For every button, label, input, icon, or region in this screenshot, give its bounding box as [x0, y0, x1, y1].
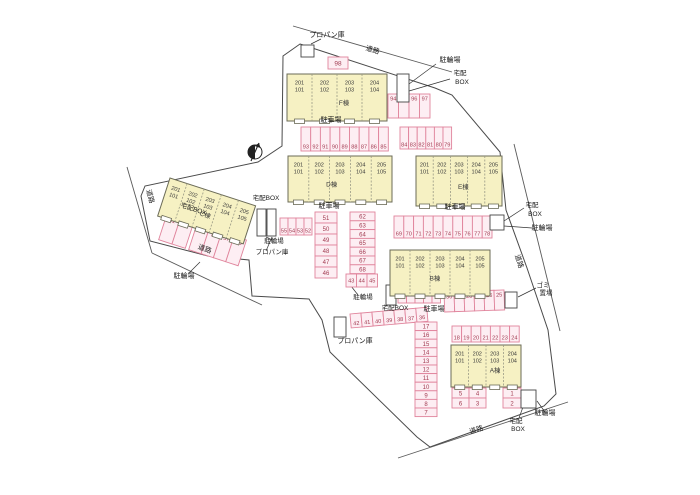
- label-delivery-ne-2: BOX: [455, 79, 469, 86]
- parking-number: 17: [423, 325, 430, 331]
- label-delivery-e-2: BOX: [528, 211, 542, 218]
- unit-number: 203: [335, 163, 344, 169]
- parking-group-55-52: 55545352: [280, 218, 312, 235]
- unit-number: 104: [472, 170, 481, 176]
- parking-group-98: 98: [328, 57, 348, 69]
- delivery-bike-box-se: [521, 390, 536, 408]
- label-parking-b: 駐車場: [424, 304, 445, 313]
- parking-number: 94: [390, 97, 396, 103]
- parking-number: 12: [423, 368, 430, 374]
- unit-number: 204: [472, 163, 481, 169]
- propane-box-bottom: [334, 317, 346, 337]
- parking-number: 92: [312, 145, 318, 151]
- unit-number: 101: [395, 264, 404, 270]
- building-E-entrance: [471, 204, 481, 209]
- parking-group-1-2: 12: [503, 388, 521, 408]
- parking-number: 98: [334, 60, 342, 67]
- unit-number: 102: [315, 170, 324, 176]
- parking-number: 65: [359, 241, 366, 247]
- parking-group-69-78: 69707172737475767778: [394, 216, 492, 238]
- unit-number: 202: [315, 163, 324, 169]
- parking-number: 97: [422, 97, 428, 103]
- unit-number: 201: [294, 163, 303, 169]
- parking-group-18-24: 18192021222324: [452, 326, 519, 342]
- label-garbage-1: ゴミ: [537, 280, 550, 289]
- unit-number: 201: [395, 257, 404, 263]
- unit-number: 105: [489, 170, 498, 176]
- site-plan-page: 9894959697939291908988878685848382818079…: [0, 0, 700, 495]
- parking-number: 89: [342, 145, 348, 151]
- parking-number: 74: [445, 232, 451, 238]
- unit-number: 204: [356, 163, 365, 169]
- label-bike-mid: 駐輪場: [353, 292, 373, 301]
- building-A-entrance: [472, 385, 482, 390]
- parking-number: 19: [463, 336, 469, 342]
- label-propane-top: プロパン庫: [309, 30, 344, 39]
- parking-number: 49: [323, 238, 330, 244]
- site-plan: 9894959697939291908988878685848382818079…: [0, 0, 700, 495]
- parking-number: 64: [359, 232, 366, 238]
- parking-number: 22: [492, 336, 498, 342]
- parking-group-93-85: 939291908988878685: [301, 127, 388, 151]
- parking-number: 93: [303, 145, 309, 151]
- unit-number: 205: [489, 163, 498, 169]
- building-E: 201101202102203103204104205105E棟: [416, 156, 502, 209]
- label-bike-ne: 駐輪場: [440, 55, 461, 64]
- unit-number: 104: [455, 264, 464, 270]
- parking-number: 85: [380, 145, 386, 151]
- parking-number: 40: [375, 319, 382, 326]
- label-delivery-b: 宅配BOX: [382, 303, 409, 312]
- building-D: 201101202102203103204104205105D棟: [288, 156, 392, 205]
- parking-number: 16: [423, 333, 430, 339]
- parking-number: 38: [397, 317, 404, 324]
- parking-group-84-79: 848382818079: [400, 127, 452, 149]
- parking-number: 18: [454, 336, 460, 342]
- parking-number: 13: [423, 359, 430, 365]
- parking-group-17-7: 1716151413121110987: [415, 322, 437, 417]
- propane-box-top: [301, 45, 314, 57]
- unit-number: 102: [437, 170, 446, 176]
- unit-number: 103: [345, 88, 354, 94]
- parking-number: 82: [418, 143, 424, 149]
- parking-number: 81: [427, 143, 433, 149]
- unit-number: 105: [377, 170, 386, 176]
- unit-number: 203: [454, 163, 463, 169]
- label-delivery-se-1: 宅配: [510, 416, 524, 425]
- parking-group-43-45: 434445: [346, 274, 378, 287]
- building-B-label: B棟: [430, 273, 441, 282]
- building-B-entrance: [415, 294, 425, 299]
- parking-number: 91: [322, 145, 328, 151]
- unit-number: 102: [320, 88, 329, 94]
- bike-box-center: [257, 209, 266, 236]
- building-E-entrance: [488, 204, 498, 209]
- parking-number: 55: [281, 229, 287, 235]
- parking-number: 79: [444, 143, 450, 149]
- unit-number: 101: [420, 170, 429, 176]
- parking-number: 36: [419, 315, 426, 322]
- parking-number: 73: [435, 232, 441, 238]
- parking-number: 70: [406, 232, 412, 238]
- building-F-entrance: [345, 119, 355, 124]
- label-bike-se: 駐輪場: [535, 408, 556, 417]
- unit-number: 101: [455, 359, 464, 365]
- parking-number: 24: [511, 336, 517, 342]
- label-parking-e: 駐車場: [445, 202, 466, 211]
- unit-number: 203: [435, 257, 444, 263]
- parking-number: 42: [353, 321, 360, 328]
- delivery-box-east: [490, 215, 504, 230]
- unit-number: 201: [295, 81, 304, 87]
- unit-number: 204: [370, 81, 379, 87]
- building-A-entrance: [507, 385, 517, 390]
- parking-number: 63: [359, 223, 366, 229]
- label-delivery-se-2: BOX: [511, 426, 525, 433]
- parking-number: 15: [423, 342, 430, 348]
- unit-number: 102: [415, 264, 424, 270]
- parking-number: 54: [289, 229, 295, 235]
- parking-number: 20: [473, 336, 479, 342]
- parking-number: 76: [464, 232, 470, 238]
- label-delivery-e-1: 宅配: [526, 200, 540, 209]
- label-garbage-2: 置場: [540, 288, 554, 297]
- parking-number: 80: [436, 143, 442, 149]
- label-delivery-ne-1: 宅配: [454, 68, 468, 77]
- parking-number: 87: [361, 145, 367, 151]
- parking-number: 78: [484, 232, 490, 238]
- unit-number: 105: [475, 264, 484, 270]
- unit-number: 103: [490, 359, 499, 365]
- propane-box-center: [267, 209, 276, 236]
- parking-number: 62: [359, 215, 366, 221]
- delivery-bike-box-ne: [397, 74, 409, 102]
- unit-number: 205: [377, 163, 386, 169]
- parking-number: 41: [364, 320, 371, 327]
- unit-number: 104: [508, 359, 517, 365]
- unit-number: 202: [437, 163, 446, 169]
- unit-number: 205: [475, 257, 484, 263]
- parking-group-51-46: 515049484746: [315, 212, 337, 278]
- building-B-entrance: [475, 294, 485, 299]
- building-E-entrance: [420, 204, 430, 209]
- parking-number: 52: [305, 229, 311, 235]
- unit-number: 103: [454, 170, 463, 176]
- parking-group-62-68: 62636465666768: [350, 212, 375, 274]
- building-F-label: F棟: [339, 98, 350, 107]
- parking-number: 44: [359, 279, 365, 285]
- label-delivery-d: 宅配BOX: [253, 193, 280, 202]
- garbage-box: [505, 292, 517, 308]
- unit-number: 101: [294, 170, 303, 176]
- parking-number: 88: [351, 145, 357, 151]
- parking-number: 83: [410, 143, 416, 149]
- parking-number: 84: [401, 143, 407, 149]
- parking-number: 47: [323, 260, 330, 266]
- parking-number: 11: [423, 376, 430, 382]
- label-parking-f: 駐車場: [321, 115, 342, 124]
- building-A-label: A棟: [490, 366, 501, 375]
- unit-number: 204: [508, 352, 517, 358]
- parking-number: 10: [423, 385, 430, 391]
- building-A-entrance: [490, 385, 500, 390]
- parking-number: 51: [323, 216, 330, 222]
- building-F-entrance: [295, 119, 305, 124]
- parking-number: 37: [408, 316, 415, 323]
- parking-number: 96: [411, 97, 417, 103]
- unit-number: 101: [295, 88, 304, 94]
- parking-number: 68: [359, 267, 366, 273]
- parking-number: 43: [348, 279, 354, 285]
- parking-group-6-3: 63: [452, 398, 486, 408]
- label-propane-center: プロパン庫: [256, 247, 289, 256]
- building-D-entrance: [356, 200, 366, 205]
- parking-number: 39: [386, 318, 393, 325]
- unit-number: 204: [455, 257, 464, 263]
- unit-number: 201: [420, 163, 429, 169]
- building-A: 201101202102203103204104A棟: [451, 345, 521, 390]
- parking-number: 50: [323, 227, 330, 233]
- parking-number: 14: [423, 350, 430, 356]
- parking-number: 66: [359, 250, 366, 256]
- parking-number: 75: [455, 232, 461, 238]
- parking-number: 86: [371, 145, 377, 151]
- unit-number: 203: [490, 352, 499, 358]
- parking-number: 90: [332, 145, 338, 151]
- parking-number: 23: [502, 336, 508, 342]
- unit-number: 203: [345, 81, 354, 87]
- building-B-entrance: [395, 294, 405, 299]
- building-D-label: D棟: [326, 179, 338, 188]
- unit-number: 201: [455, 352, 464, 358]
- unit-number: 103: [435, 264, 444, 270]
- building-B-entrance: [435, 294, 445, 299]
- unit-number: 202: [415, 257, 424, 263]
- parking-number: 48: [323, 249, 330, 255]
- unit-number: 104: [370, 88, 379, 94]
- parking-number: 72: [425, 232, 431, 238]
- building-D-entrance: [293, 200, 303, 205]
- label-bike-center: 駐輪場: [264, 236, 284, 245]
- parking-number: 53: [297, 229, 303, 235]
- building-D-entrance: [377, 200, 387, 205]
- unit-number: 103: [335, 170, 344, 176]
- unit-number: 104: [356, 170, 365, 176]
- parking-number: 77: [474, 232, 480, 238]
- parking-number: 45: [369, 279, 375, 285]
- building-E-label: E棟: [458, 182, 469, 191]
- label-bike-sw: 駐輪場: [174, 271, 195, 280]
- building-F-entrance: [370, 119, 380, 124]
- unit-number: 102: [473, 359, 482, 365]
- parking-number: 21: [482, 336, 488, 342]
- parking-number: 46: [323, 271, 330, 277]
- parking-number: 67: [359, 259, 366, 265]
- parking-number: 69: [396, 232, 402, 238]
- label-bike-e: 駐輪場: [532, 223, 553, 232]
- parking-number: 25: [496, 293, 502, 299]
- building-B-entrance: [455, 294, 465, 299]
- unit-number: 202: [320, 81, 329, 87]
- building-B: 201101202102203103204104205105B棟: [390, 250, 490, 299]
- parking-number: 71: [415, 232, 421, 238]
- building-A-entrance: [455, 385, 465, 390]
- label-parking-d: 駐車場: [319, 201, 340, 210]
- unit-number: 202: [473, 352, 482, 358]
- label-propane-bottom: プロパン庫: [337, 336, 372, 345]
